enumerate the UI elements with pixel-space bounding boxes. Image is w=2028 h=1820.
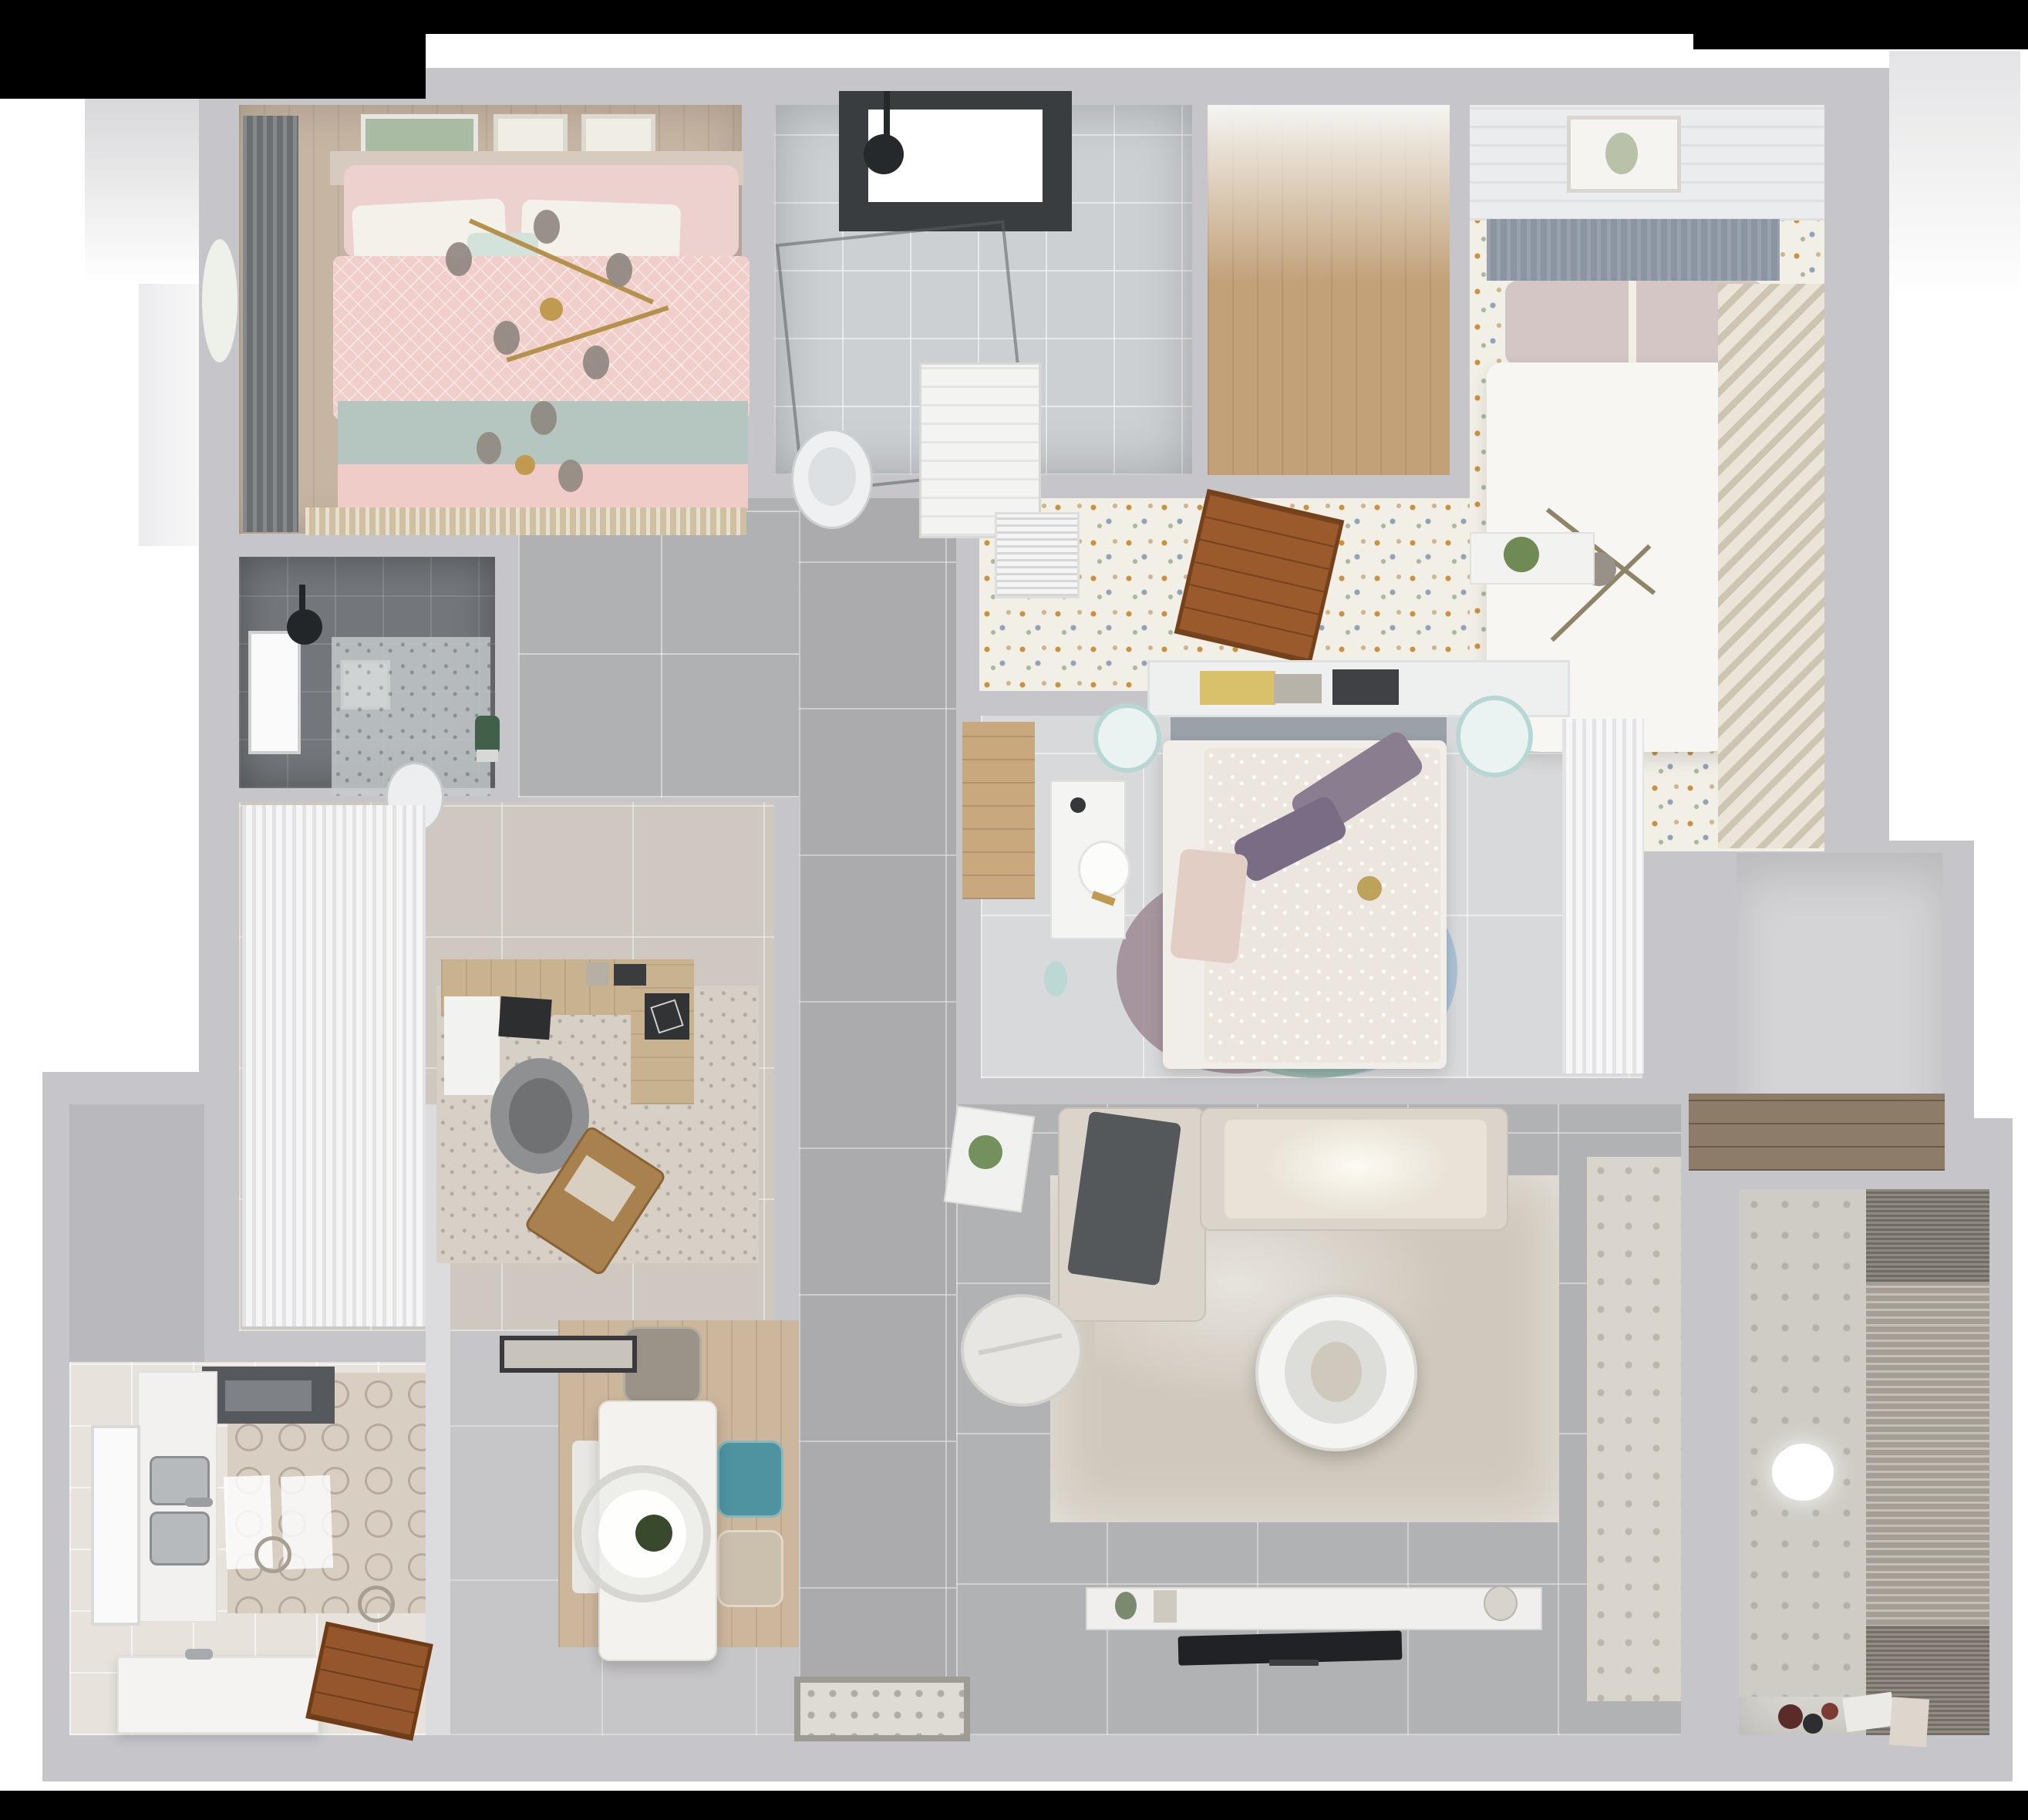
frame-black-bottom <box>0 1791 2028 1820</box>
lv-console-deco-1 <box>1154 1590 1177 1623</box>
frame-black-topleft <box>0 0 426 99</box>
b1-chandelier-joint-2 <box>515 455 535 475</box>
kt-hex-ring-2 <box>358 1586 395 1623</box>
st-papers <box>444 996 500 1095</box>
b2-art-sketch <box>1605 133 1638 174</box>
b1-curtain <box>243 116 298 532</box>
frame-black-topright <box>1693 0 2028 49</box>
lv-sofa-glow <box>1265 1120 1450 1212</box>
sw-plant <box>475 716 500 754</box>
lv-console-plant <box>1115 1592 1137 1619</box>
b3-gold-sprig <box>1357 876 1382 901</box>
b1-chandelier-bulb-2 <box>534 210 560 244</box>
lv-console-deco-2 <box>1484 1586 1518 1621</box>
b3-desk-chair <box>1078 841 1130 898</box>
bl-towel <box>1889 1697 1929 1747</box>
b2-slat-wardrobe <box>1718 284 1824 848</box>
b1-chandelier-bulb-5 <box>583 345 609 379</box>
b3-book-2 <box>1332 669 1399 705</box>
b3-book-1 <box>1200 671 1275 705</box>
bath-shower-head <box>864 134 904 174</box>
living-runner-rug <box>1587 1157 1681 1701</box>
kt-hex-ring-1 <box>254 1536 291 1573</box>
kitchen-cabinet-column <box>69 1104 204 1362</box>
dn-centerpiece-plant <box>635 1515 672 1552</box>
b3-book-3 <box>1274 674 1322 703</box>
b1-chandelier-bulb-3 <box>606 253 632 287</box>
b1-chandelier-bulb-1 <box>446 242 472 276</box>
sw-window <box>248 631 301 754</box>
kt-hood-inner <box>225 1380 312 1411</box>
floor-plan-render <box>0 0 2028 1820</box>
bl-toy-3 <box>1821 1703 1838 1720</box>
b1-duvet-end <box>338 464 748 509</box>
bl-ceiling-lamp <box>1772 1444 1834 1501</box>
b3-curtain-right <box>1562 719 1644 1073</box>
b2-headboard <box>1487 219 1780 281</box>
kt-faucet <box>185 1498 213 1507</box>
kt-window <box>91 1425 140 1626</box>
bath-toilet-seat <box>808 447 856 506</box>
b1-duvet-pink <box>333 256 750 420</box>
b1-chandelier-bulb-6 <box>531 401 557 435</box>
bath-shower-stem <box>884 91 890 139</box>
b1-chandelier-bulb-8 <box>558 460 583 492</box>
corridor-floor <box>799 498 956 1735</box>
b2-pillow-gap <box>1629 281 1636 366</box>
b1-chandelier-bulb-4 <box>494 321 520 355</box>
sw-shower-head <box>287 609 322 645</box>
b3-pillow-blush <box>1170 848 1248 964</box>
dn-chair-beige <box>717 1530 783 1607</box>
st-book-dark <box>614 964 646 986</box>
st-doormat <box>500 1336 637 1373</box>
kt-island-faucet <box>185 1649 213 1660</box>
b2-console-plant <box>1504 537 1539 572</box>
sw-plant-pot <box>477 750 498 762</box>
exterior-shade-right <box>1889 51 2020 298</box>
b3-desk-item <box>1070 797 1086 813</box>
closet-room-glow <box>1208 105 1450 282</box>
st-office-chair-seat <box>509 1078 572 1154</box>
kt-sink-2 <box>150 1512 210 1566</box>
b1-chandelier-bulb-7 <box>477 432 501 464</box>
bl-toy-2 <box>1803 1714 1823 1734</box>
st-sheer-curtain <box>242 805 426 1326</box>
lv-coffee-table-hole <box>1311 1342 1362 1402</box>
bl-paper <box>1842 1692 1896 1732</box>
storage-wood-shelf <box>1689 1094 1945 1171</box>
b3-wood-closet-floor <box>962 722 1035 899</box>
dn-chair-teal <box>717 1441 783 1518</box>
b3-pouf-right <box>1456 696 1533 777</box>
bl-blind-bunch-top <box>1866 1189 1989 1282</box>
lv-side-table-plant <box>969 1135 1002 1169</box>
hall-ac-vent <box>995 512 1080 598</box>
lv-tv-stand <box>1269 1660 1319 1666</box>
b1-rug-fringe <box>305 507 746 535</box>
hall-top-floor <box>518 498 799 797</box>
b3-pouf-left <box>1093 703 1161 773</box>
kt-island-counter <box>117 1657 319 1734</box>
st-monitor <box>498 996 551 1040</box>
bl-toy-1 <box>1778 1704 1803 1729</box>
b1-window-plant <box>202 239 237 362</box>
balcony-pattern-wall <box>1739 1189 1868 1697</box>
b1-chandelier-joint <box>540 298 563 321</box>
b3-bottle <box>1044 961 1067 996</box>
st-book-light <box>586 962 609 986</box>
entry-door-mat <box>794 1677 970 1741</box>
